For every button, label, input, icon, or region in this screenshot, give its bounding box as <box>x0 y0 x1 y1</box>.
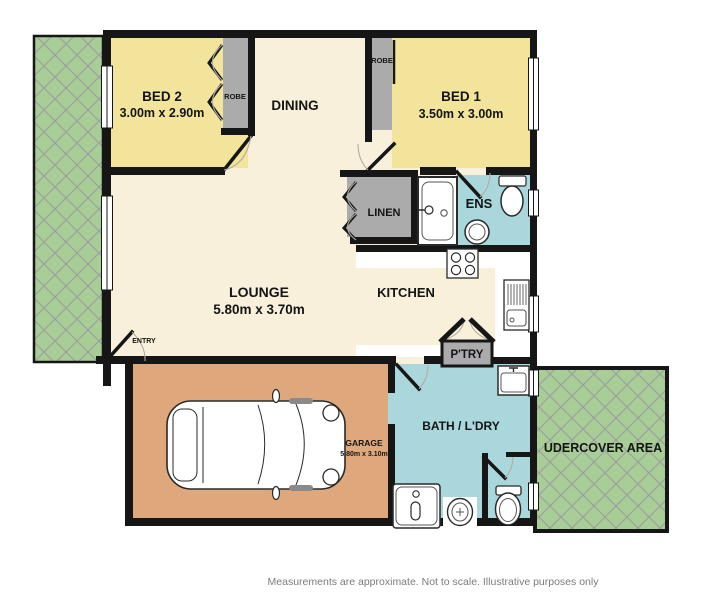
wall-segment <box>103 167 225 175</box>
wall-segment <box>125 363 133 526</box>
ens-label: ENS <box>466 196 493 211</box>
lounge-dims: 5.80m x 3.70m <box>213 302 305 317</box>
robe-bed1 <box>372 38 392 130</box>
car-wheel-flare <box>289 398 313 404</box>
wall-segment <box>492 357 537 364</box>
disclaimer-text: Measurements are approximate. Not to sca… <box>268 576 600 588</box>
garage-label: GARAGE <box>345 438 383 448</box>
wall-segment <box>221 128 255 135</box>
garage-dims: 5.80m x 3.10m <box>340 451 387 458</box>
dining-label: DINING <box>271 98 318 113</box>
wall-segment <box>365 30 372 142</box>
bed2-robe-label: ROBE <box>224 92 246 101</box>
sink-drainer <box>508 284 526 305</box>
pantry-label: P'TRY <box>451 349 484 361</box>
car-rear <box>173 409 197 481</box>
floor-plan-canvas: BED 2 3.00m x 2.90m ROBE DINING ROBE BED… <box>0 0 719 600</box>
floor-plan-drawing: BED 2 3.00m x 2.90m ROBE DINING ROBE BED… <box>0 0 719 600</box>
stove-burner <box>465 253 474 262</box>
car-headlight <box>323 469 339 485</box>
car-wheel-flare <box>289 485 313 491</box>
linen-label: LINEN <box>368 207 401 219</box>
car-top-view <box>167 390 345 500</box>
bath-vanity-pedestal <box>411 502 420 520</box>
car-headlight <box>323 405 339 421</box>
lounge-label: LOUNGE <box>229 284 289 300</box>
wall-segment <box>103 30 537 38</box>
bed2-label: BED 2 <box>142 89 182 104</box>
wall-segment <box>424 356 442 364</box>
stove-burner <box>451 265 460 274</box>
bed1-dims: 3.50m x 3.00m <box>419 107 504 121</box>
wall-segment <box>482 453 488 518</box>
car-mirror <box>273 487 280 500</box>
bed1-robe-label: ROBE <box>371 56 393 65</box>
wall-segment <box>248 30 255 136</box>
wall-segment <box>486 167 537 175</box>
car-mirror <box>273 390 280 403</box>
wall-segment <box>411 170 418 244</box>
kitchen-floor <box>356 268 495 345</box>
bath-vanity-plug <box>413 491 419 497</box>
stove-burner <box>465 265 474 274</box>
wall-segment <box>96 356 396 364</box>
stove-burner <box>451 253 460 262</box>
garage-bath-doorway <box>388 393 395 424</box>
bed1-label: BED 1 <box>441 89 481 104</box>
wall-segment <box>340 170 418 177</box>
ens-shower <box>418 177 457 245</box>
robe-bed2 <box>223 38 248 130</box>
undercover-label: UDERCOVER AREA <box>544 441 662 455</box>
bath-label: BATH / L'DRY <box>422 419 500 433</box>
wall-segment <box>420 167 456 175</box>
garden-strip-left <box>34 36 103 362</box>
ens-toilet-bowl <box>501 186 523 216</box>
entry-label: ENTRY <box>132 338 156 345</box>
ens-shower-tap <box>425 206 433 214</box>
wall-segment <box>388 363 395 393</box>
wall-segment <box>350 237 418 244</box>
kitchen-label: KITCHEN <box>377 285 435 300</box>
ens-toilet-cistern <box>499 176 526 186</box>
bed2-dims: 3.00m x 2.90m <box>120 106 205 120</box>
wall-segment <box>506 452 530 457</box>
